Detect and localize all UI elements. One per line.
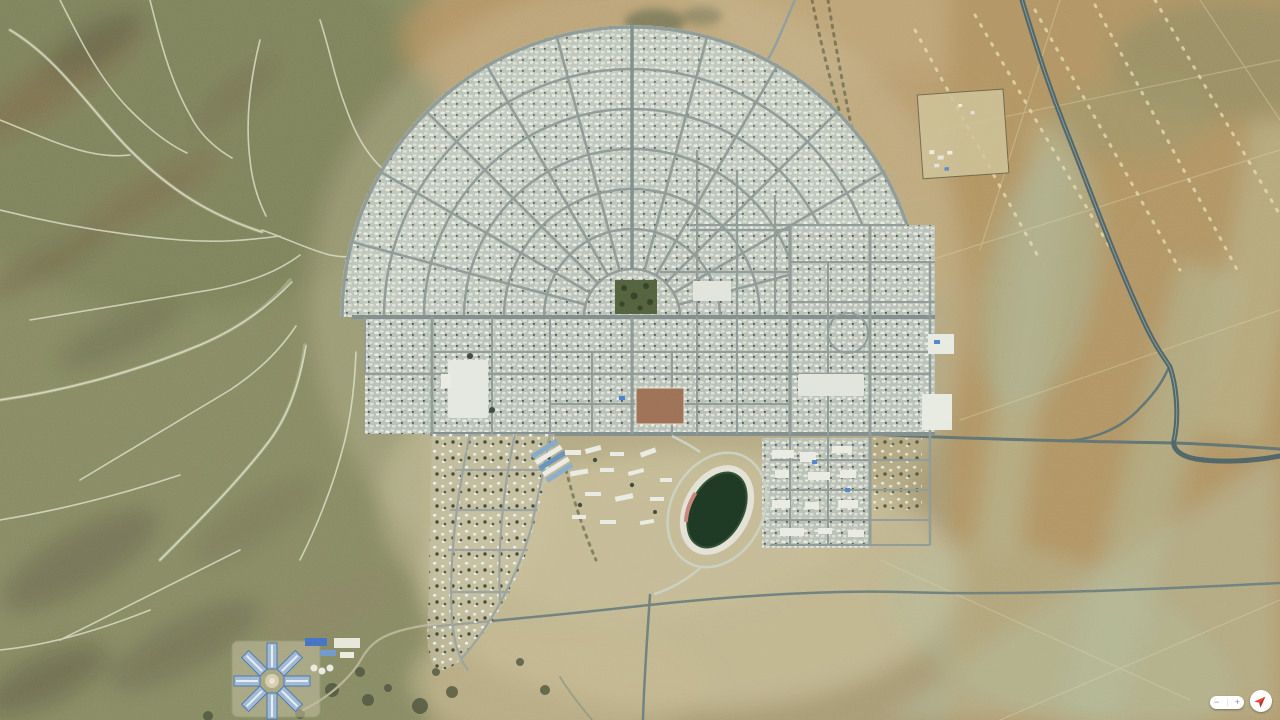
zoom-in-button[interactable]: + bbox=[1235, 698, 1240, 707]
zoom-divider bbox=[1227, 699, 1228, 706]
zoom-out-button[interactable]: − bbox=[1214, 698, 1219, 707]
compass-needle-icon bbox=[1250, 690, 1272, 712]
map-viewport[interactable]: − + bbox=[0, 0, 1280, 720]
compass-button[interactable] bbox=[1250, 690, 1272, 712]
satellite-canvas[interactable] bbox=[0, 0, 1280, 720]
film-grain bbox=[0, 0, 1280, 720]
zoom-control[interactable]: − + bbox=[1210, 696, 1244, 709]
